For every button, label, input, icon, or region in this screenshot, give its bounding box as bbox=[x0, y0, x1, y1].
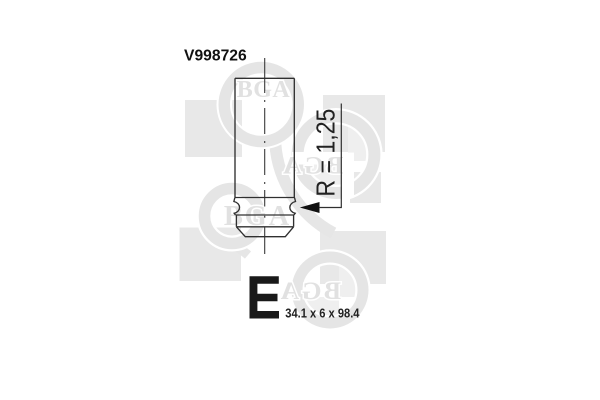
svg-text:34.1 x 6 x 98.4: 34.1 x 6 x 98.4 bbox=[285, 305, 360, 320]
svg-text:BGA: BGA bbox=[237, 77, 291, 103]
svg-text:R = 1,25: R = 1,25 bbox=[312, 109, 340, 197]
svg-text:BGA: BGA bbox=[278, 276, 341, 305]
svg-text:V998726: V998726 bbox=[184, 48, 247, 65]
